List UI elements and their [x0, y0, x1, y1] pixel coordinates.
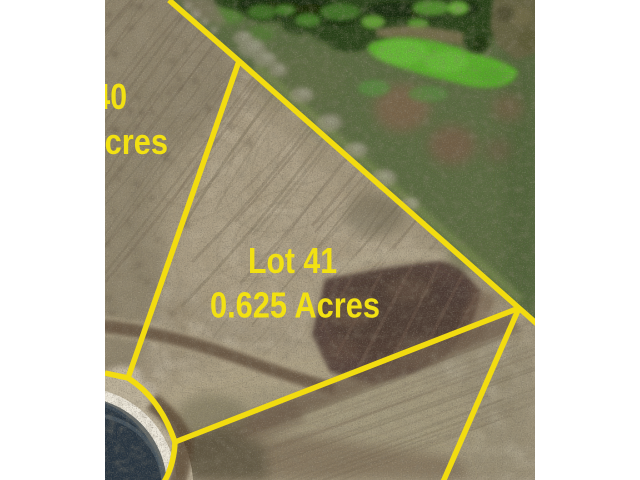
svg-text:Lot 41: Lot 41: [248, 240, 337, 281]
svg-text:0.625 Acres: 0.625 Acres: [210, 285, 380, 326]
